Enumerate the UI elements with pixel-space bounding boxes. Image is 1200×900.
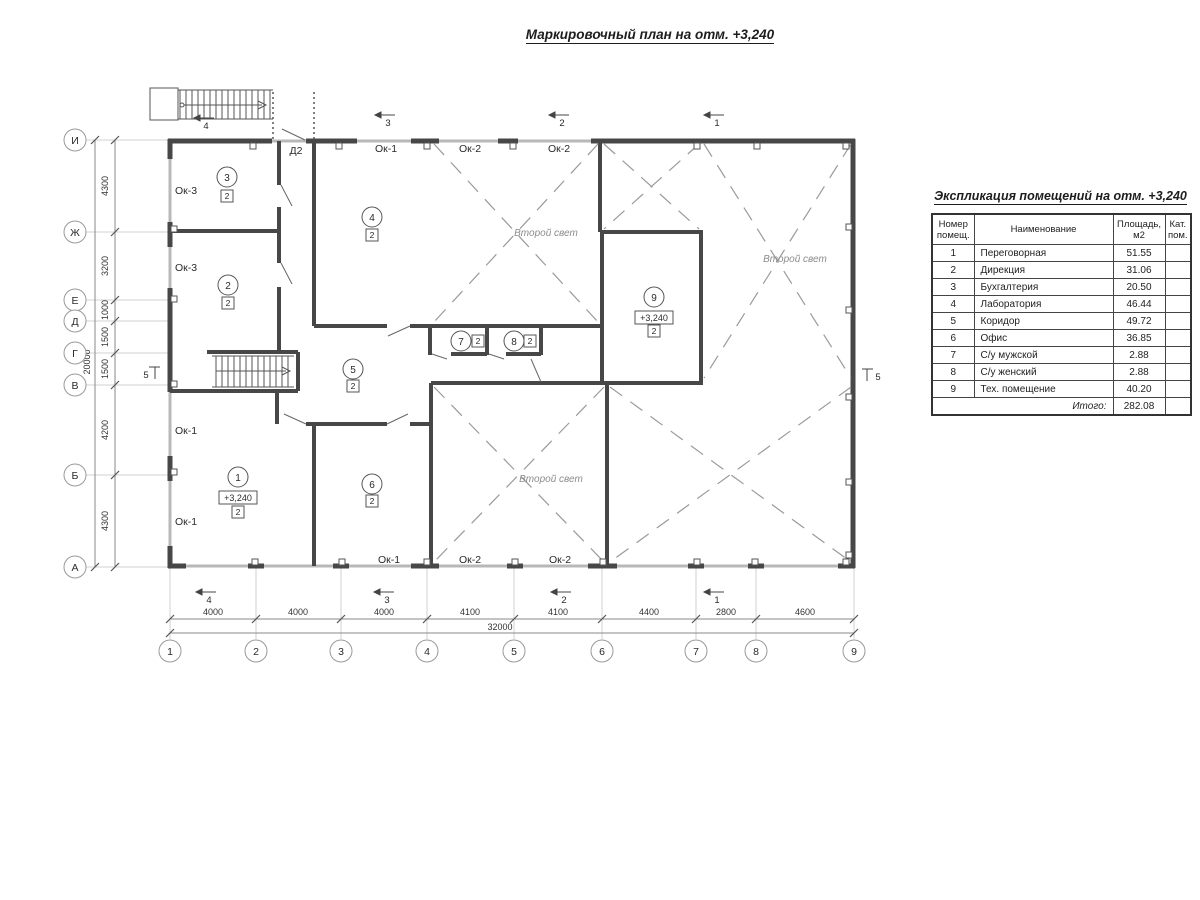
axis-left-3: Д <box>71 316 78 328</box>
table-row: 5Коридор49.72 <box>932 313 1191 330</box>
dim-bottom-5: 4400 <box>639 607 659 617</box>
explication-title: Экспликация помещений на отм. +3,240 <box>931 189 1190 203</box>
axis-bottom-2: 3 <box>338 646 344 658</box>
dim-bottom-1: 4000 <box>288 607 308 617</box>
explication-table: Номер помещ. Наименование Площадь, м2 Ка… <box>931 213 1192 416</box>
window-label-ok2: Ок-2 <box>459 554 481 566</box>
interior-stair <box>212 356 294 387</box>
dim-bottom-total: 32000 <box>487 622 512 632</box>
dim-left-0: 4300 <box>100 176 110 196</box>
room-7-number: 7 <box>458 337 464 348</box>
col-header-num: Номер помещ. <box>932 214 974 245</box>
dim-bottom-0: 4000 <box>203 607 223 617</box>
axis-bottom-1: 2 <box>253 646 259 658</box>
section-mark-1-bottom: 1 <box>714 595 719 606</box>
section-mark-3-top: 3 <box>385 118 390 129</box>
axis-left-4: Г <box>72 348 78 360</box>
axis-left-5: В <box>71 380 78 392</box>
window-label-ok2: Ок-2 <box>459 143 481 155</box>
axis-left-6: Б <box>72 470 79 482</box>
dim-bottom-4: 4100 <box>548 607 568 617</box>
section-mark-3-bottom: 3 <box>384 595 389 606</box>
room-2-category: 2 <box>226 298 231 308</box>
axis-bottom-4: 5 <box>511 646 517 658</box>
dim-left-2: 1000 <box>100 300 110 320</box>
window-label-ok3: Ок-3 <box>175 185 197 197</box>
room-8-category: 2 <box>528 336 533 346</box>
window-label-ok2: Ок-2 <box>548 143 570 155</box>
room-1-level-mark: +3,240 <box>224 493 252 503</box>
axis-bottom-5: 6 <box>599 646 605 658</box>
room-8-number: 8 <box>511 337 517 348</box>
axis-left-1: Ж <box>70 227 80 239</box>
room-tags: 1 2 3 4 5 6 7 8 9 +3,240 +3,240 2 2 2 2 … <box>217 167 673 518</box>
table-row: 3Бухгалтерия20.50 <box>932 279 1191 296</box>
room-3-number: 3 <box>224 173 230 184</box>
section-mark-2-top: 2 <box>559 118 564 129</box>
table-row: 1Переговорная51.55 <box>932 245 1191 262</box>
room-9-category: 2 <box>652 326 657 336</box>
door-label-d2: Д2 <box>290 145 303 157</box>
window-label-ok1: Ок-1 <box>375 143 397 155</box>
axis-left-0: И <box>71 135 79 147</box>
window-label-ok3: Ок-3 <box>175 262 197 274</box>
table-row: 2Дирекция31.06 <box>932 262 1191 279</box>
total-value: 282.08 <box>1113 398 1165 416</box>
window-label-ok1: Ок-1 <box>378 554 400 566</box>
room-1-category: 2 <box>236 507 241 517</box>
dim-bottom-2: 4000 <box>374 607 394 617</box>
room-6-number: 6 <box>369 480 375 491</box>
dim-left-1: 3200 <box>100 256 110 276</box>
col-header-cat: Кат. пом. <box>1165 214 1191 245</box>
room-6-category: 2 <box>370 496 375 506</box>
axis-bottom-7: 8 <box>753 646 759 658</box>
axis-bottom-8: 9 <box>851 646 857 658</box>
section-mark-5-right: 5 <box>875 372 880 383</box>
col-header-area: Площадь, м2 <box>1113 214 1165 245</box>
floor-plan-drawing: 4300 3200 1000 1500 1500 4200 4300 20000… <box>0 0 1200 900</box>
axis-left-2: Е <box>71 295 78 307</box>
dim-left-3: 1500 <box>100 327 110 347</box>
table-row: 6Офис36.85 <box>932 330 1191 347</box>
axis-bottom-6: 7 <box>693 646 699 658</box>
second-light-label: Второй свет <box>514 228 578 239</box>
window-label-ok1: Ок-1 <box>175 425 197 437</box>
section-mark-5-left: 5 <box>143 370 148 381</box>
dim-left-5: 4200 <box>100 420 110 440</box>
second-light-label: Второй свет <box>519 474 583 485</box>
room-5-number: 5 <box>350 365 356 376</box>
dimension-values: 4300 3200 1000 1500 1500 4200 4300 20000… <box>82 176 815 632</box>
room-5-category: 2 <box>351 381 356 391</box>
room-9-number: 9 <box>651 293 657 304</box>
room-7-category: 2 <box>476 336 481 346</box>
table-row: 4Лаборатория46.44 <box>932 296 1191 313</box>
room-1-number: 1 <box>235 473 241 484</box>
window-label-ok1: Ок-1 <box>175 516 197 528</box>
section-mark-2-bottom: 2 <box>561 595 566 606</box>
dim-bottom-7: 4600 <box>795 607 815 617</box>
dim-bottom-3: 4100 <box>460 607 480 617</box>
section-mark-4-top: 4 <box>203 121 208 132</box>
table-row: 8С/у женский2.88 <box>932 364 1191 381</box>
axis-bottom-0: 1 <box>167 646 173 658</box>
room-9-level-mark: +3,240 <box>640 313 668 323</box>
void-cross-dashes <box>434 144 851 562</box>
room-4-number: 4 <box>369 213 375 224</box>
axis-labels: И Ж Е Д Г В Б А 1 2 3 4 5 6 7 8 9 <box>70 135 857 658</box>
second-light-label: Второй свет <box>763 254 827 265</box>
window-label-ok2: Ок-2 <box>549 554 571 566</box>
section-marks: 4 3 2 1 4 3 2 1 5 5 <box>143 112 880 606</box>
explication-panel: Экспликация помещений на отм. +3,240 Ном… <box>931 189 1190 416</box>
door-swings <box>281 129 541 424</box>
table-row: 7С/у мужской2.88 <box>932 347 1191 364</box>
room-3-category: 2 <box>225 191 230 201</box>
total-label: Итого: <box>932 398 1113 416</box>
opening-labels: Ок-3 Ок-3 Ок-1 Ок-1 Д2 Ок-1 Ок-2 Ок-2 Ок… <box>175 143 827 566</box>
section-mark-4-bottom: 4 <box>206 595 211 606</box>
table-header-row: Номер помещ. Наименование Площадь, м2 Ка… <box>932 214 1191 245</box>
axis-left-7: А <box>71 562 78 574</box>
dim-left-4: 1500 <box>100 359 110 379</box>
table-total-row: Итого: 282.08 <box>932 398 1191 416</box>
axis-bottom-3: 4 <box>424 646 430 658</box>
col-header-name: Наименование <box>974 214 1113 245</box>
dim-left-6: 4300 <box>100 511 110 531</box>
section-mark-1-top: 1 <box>714 118 719 129</box>
room-4-category: 2 <box>370 230 375 240</box>
table-row: 9Тех. помещение40.20 <box>932 381 1191 398</box>
room-2-number: 2 <box>225 281 231 292</box>
dim-bottom-6: 2800 <box>716 607 736 617</box>
